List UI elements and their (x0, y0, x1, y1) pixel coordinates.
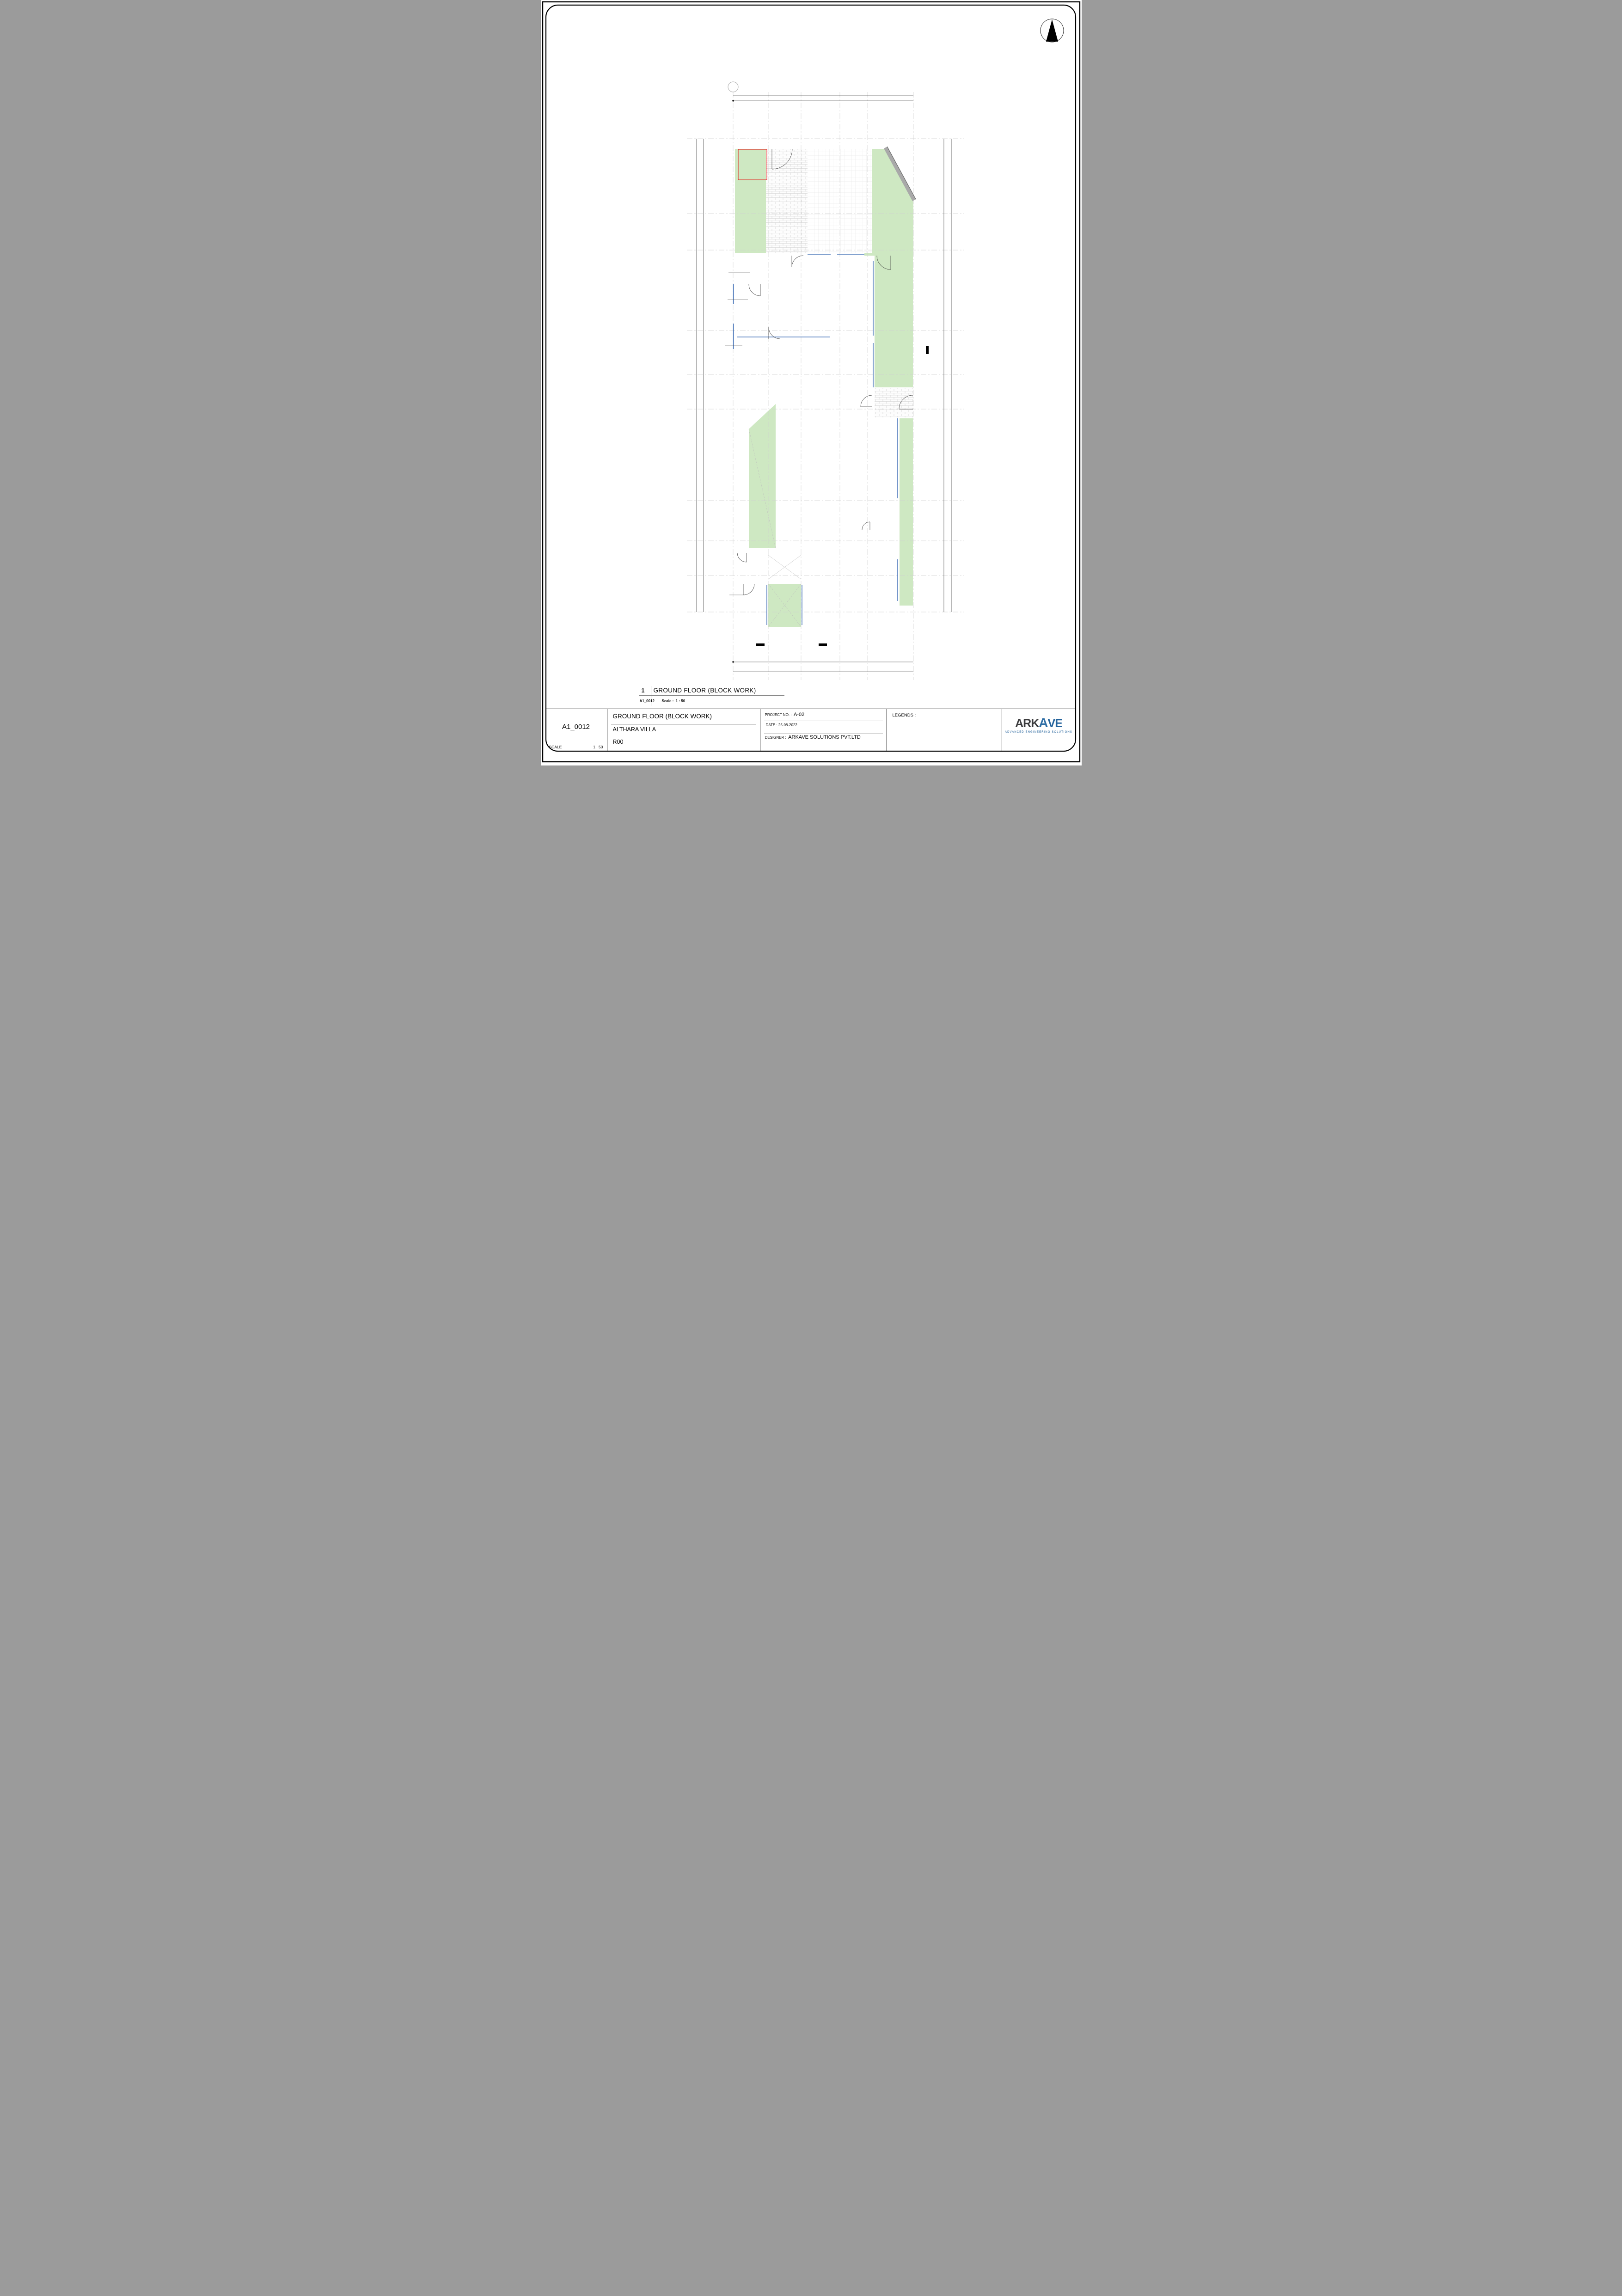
logo-tagline: ADVANCED ENGINEERING SOLUTIONS (1002, 731, 1076, 734)
arkave-logo: ARKAVE ADVANCED ENGINEERING SOLUTIONS (1002, 716, 1076, 734)
view-ref: A1_0012 (640, 699, 655, 703)
legends-label: LEGENDS : (893, 713, 1002, 718)
titleblock-logo-cell: ARKAVE ADVANCED ENGINEERING SOLUTIONS (1002, 709, 1076, 751)
titleblock-project-name: ALTHARA VILLA (613, 726, 760, 733)
view-number: 1 (642, 687, 645, 694)
view-scale-value: 1 : 50 (676, 699, 685, 703)
dim-tick (732, 661, 734, 662)
titleblock-title-cell: GROUND FLOOR (BLOCK WORK) ALTHARA VILLA … (607, 709, 760, 751)
view-scale-label: Scale : (662, 699, 674, 703)
titleblock-revision: R00 (613, 739, 760, 745)
sheet-frame (543, 2, 1080, 762)
project-no-label: PROJECT NO. : (765, 713, 792, 717)
project-no-value: A-02 (794, 712, 804, 717)
titleblock-drawing-title: GROUND FLOOR (BLOCK WORK) (613, 713, 760, 720)
grid-bubble (728, 82, 738, 92)
designer-value: ARKAVE SOLUTIONS PVT.LTD (788, 735, 861, 740)
dim-tick (732, 100, 734, 101)
titleblock-sheetno-cell: A1_0012 SCALE 1 : 50 (545, 709, 607, 751)
date-value: DATE : 25-08-2022 (766, 723, 887, 727)
view-scale: Scale : 1 : 50 (662, 699, 686, 703)
scale-label: SCALE (549, 745, 562, 749)
sheet-number: A1_0012 (545, 723, 607, 731)
floor-plan-canvas (541, 0, 1082, 765)
logo-suffix: VE (1048, 717, 1062, 730)
leader-lines (725, 273, 750, 595)
logo-prefix: ARK (1015, 717, 1039, 730)
north-arrow-icon (1041, 19, 1064, 42)
designer-label: DESIGNER : (765, 735, 786, 740)
logo-accent: A (1039, 716, 1047, 730)
drawing-sheet: 1 GROUND FLOOR (BLOCK WORK) A1_0012 Scal… (541, 0, 1082, 765)
view-title-underline (639, 695, 784, 696)
titleblock-legends-cell: LEGENDS : (887, 709, 1002, 751)
scale-value: 1 : 50 (593, 745, 603, 749)
view-title-divider (651, 686, 651, 706)
titleblock-meta-cell: PROJECT NO. : A-02 DATE : 25-08-2022 DES… (760, 709, 887, 751)
view-title: GROUND FLOOR (BLOCK WORK) (654, 687, 756, 694)
